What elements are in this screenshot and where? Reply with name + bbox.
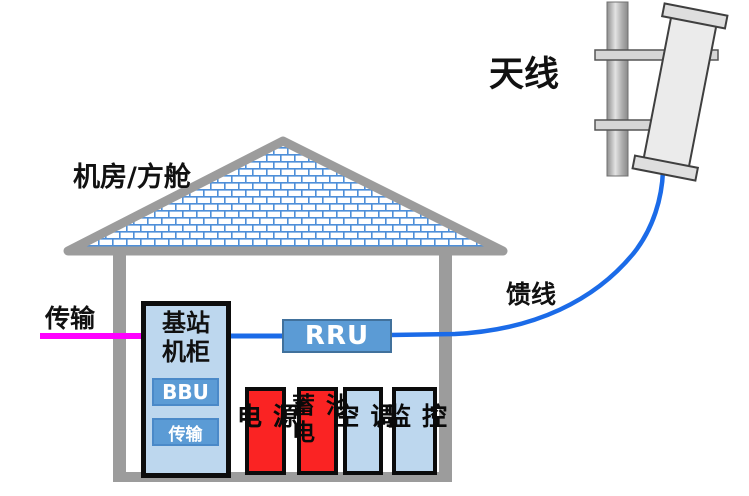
- antenna-panel-body: [643, 15, 716, 169]
- feeder-label: 馈线: [506, 275, 556, 311]
- base-station-diagram: 基站 机柜 BBU 传输 RRU 电源 蓄电池 空调 监控 天线 机房/方舱 传…: [0, 0, 749, 496]
- cabinet-title: 基站 机柜: [146, 309, 226, 367]
- bbu-module: BBU: [152, 378, 219, 406]
- equipment-room-label: 机房/方舱: [73, 155, 191, 194]
- rru-box: RRU: [282, 319, 392, 353]
- monitoring-label: 监控: [379, 403, 451, 483]
- antenna-label: 天线: [489, 46, 559, 97]
- power-supply-box: 电源: [245, 387, 286, 475]
- antenna-panel: [633, 3, 728, 180]
- air-conditioner-box: 空调: [343, 387, 383, 475]
- bbu-module-label: BBU: [162, 380, 209, 404]
- antenna-pole: [607, 2, 628, 176]
- transmission-label: 传输: [45, 299, 95, 335]
- left-wall: [113, 250, 126, 480]
- base-station-cabinet: 基站 机柜 BBU 传输: [141, 301, 231, 478]
- monitoring-box: 监控: [392, 387, 437, 475]
- antenna-bracket-bottom: [595, 120, 655, 130]
- transport-module: 传输: [152, 418, 219, 446]
- transport-module-label: 传输: [169, 420, 203, 445]
- rru-label: RRU: [305, 321, 369, 351]
